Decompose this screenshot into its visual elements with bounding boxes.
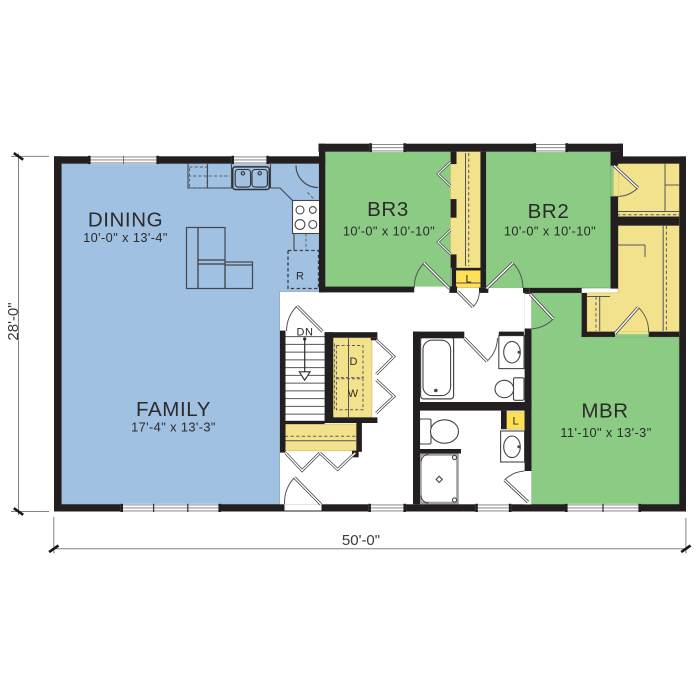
svg-text:10'-0" x 10'-10": 10'-0" x 10'-10" — [343, 224, 435, 239]
svg-text:W: W — [348, 388, 359, 400]
svg-text:D: D — [350, 356, 358, 368]
svg-text:BR3: BR3 — [367, 198, 409, 221]
svg-text:L: L — [465, 274, 471, 286]
svg-text:DINING: DINING — [88, 209, 163, 232]
svg-text:50'-0": 50'-0" — [342, 532, 380, 549]
svg-text:BR2: BR2 — [528, 200, 570, 223]
svg-text:11'-10" x 13'-3": 11'-10" x 13'-3" — [560, 425, 651, 440]
svg-text:DN: DN — [297, 327, 314, 339]
svg-text:28'-0": 28'-0" — [5, 302, 22, 340]
svg-text:10'-0" x 10'-10": 10'-0" x 10'-10" — [504, 224, 596, 239]
svg-text:10'-0" x 13'-4": 10'-0" x 13'-4" — [83, 230, 168, 245]
svg-text:MBR: MBR — [581, 400, 628, 423]
svg-text:R: R — [296, 271, 304, 283]
svg-text:L: L — [512, 416, 518, 428]
svg-text:17'-4" x 13'-3": 17'-4" x 13'-3" — [131, 420, 216, 435]
svg-text:FAMILY: FAMILY — [136, 398, 211, 421]
